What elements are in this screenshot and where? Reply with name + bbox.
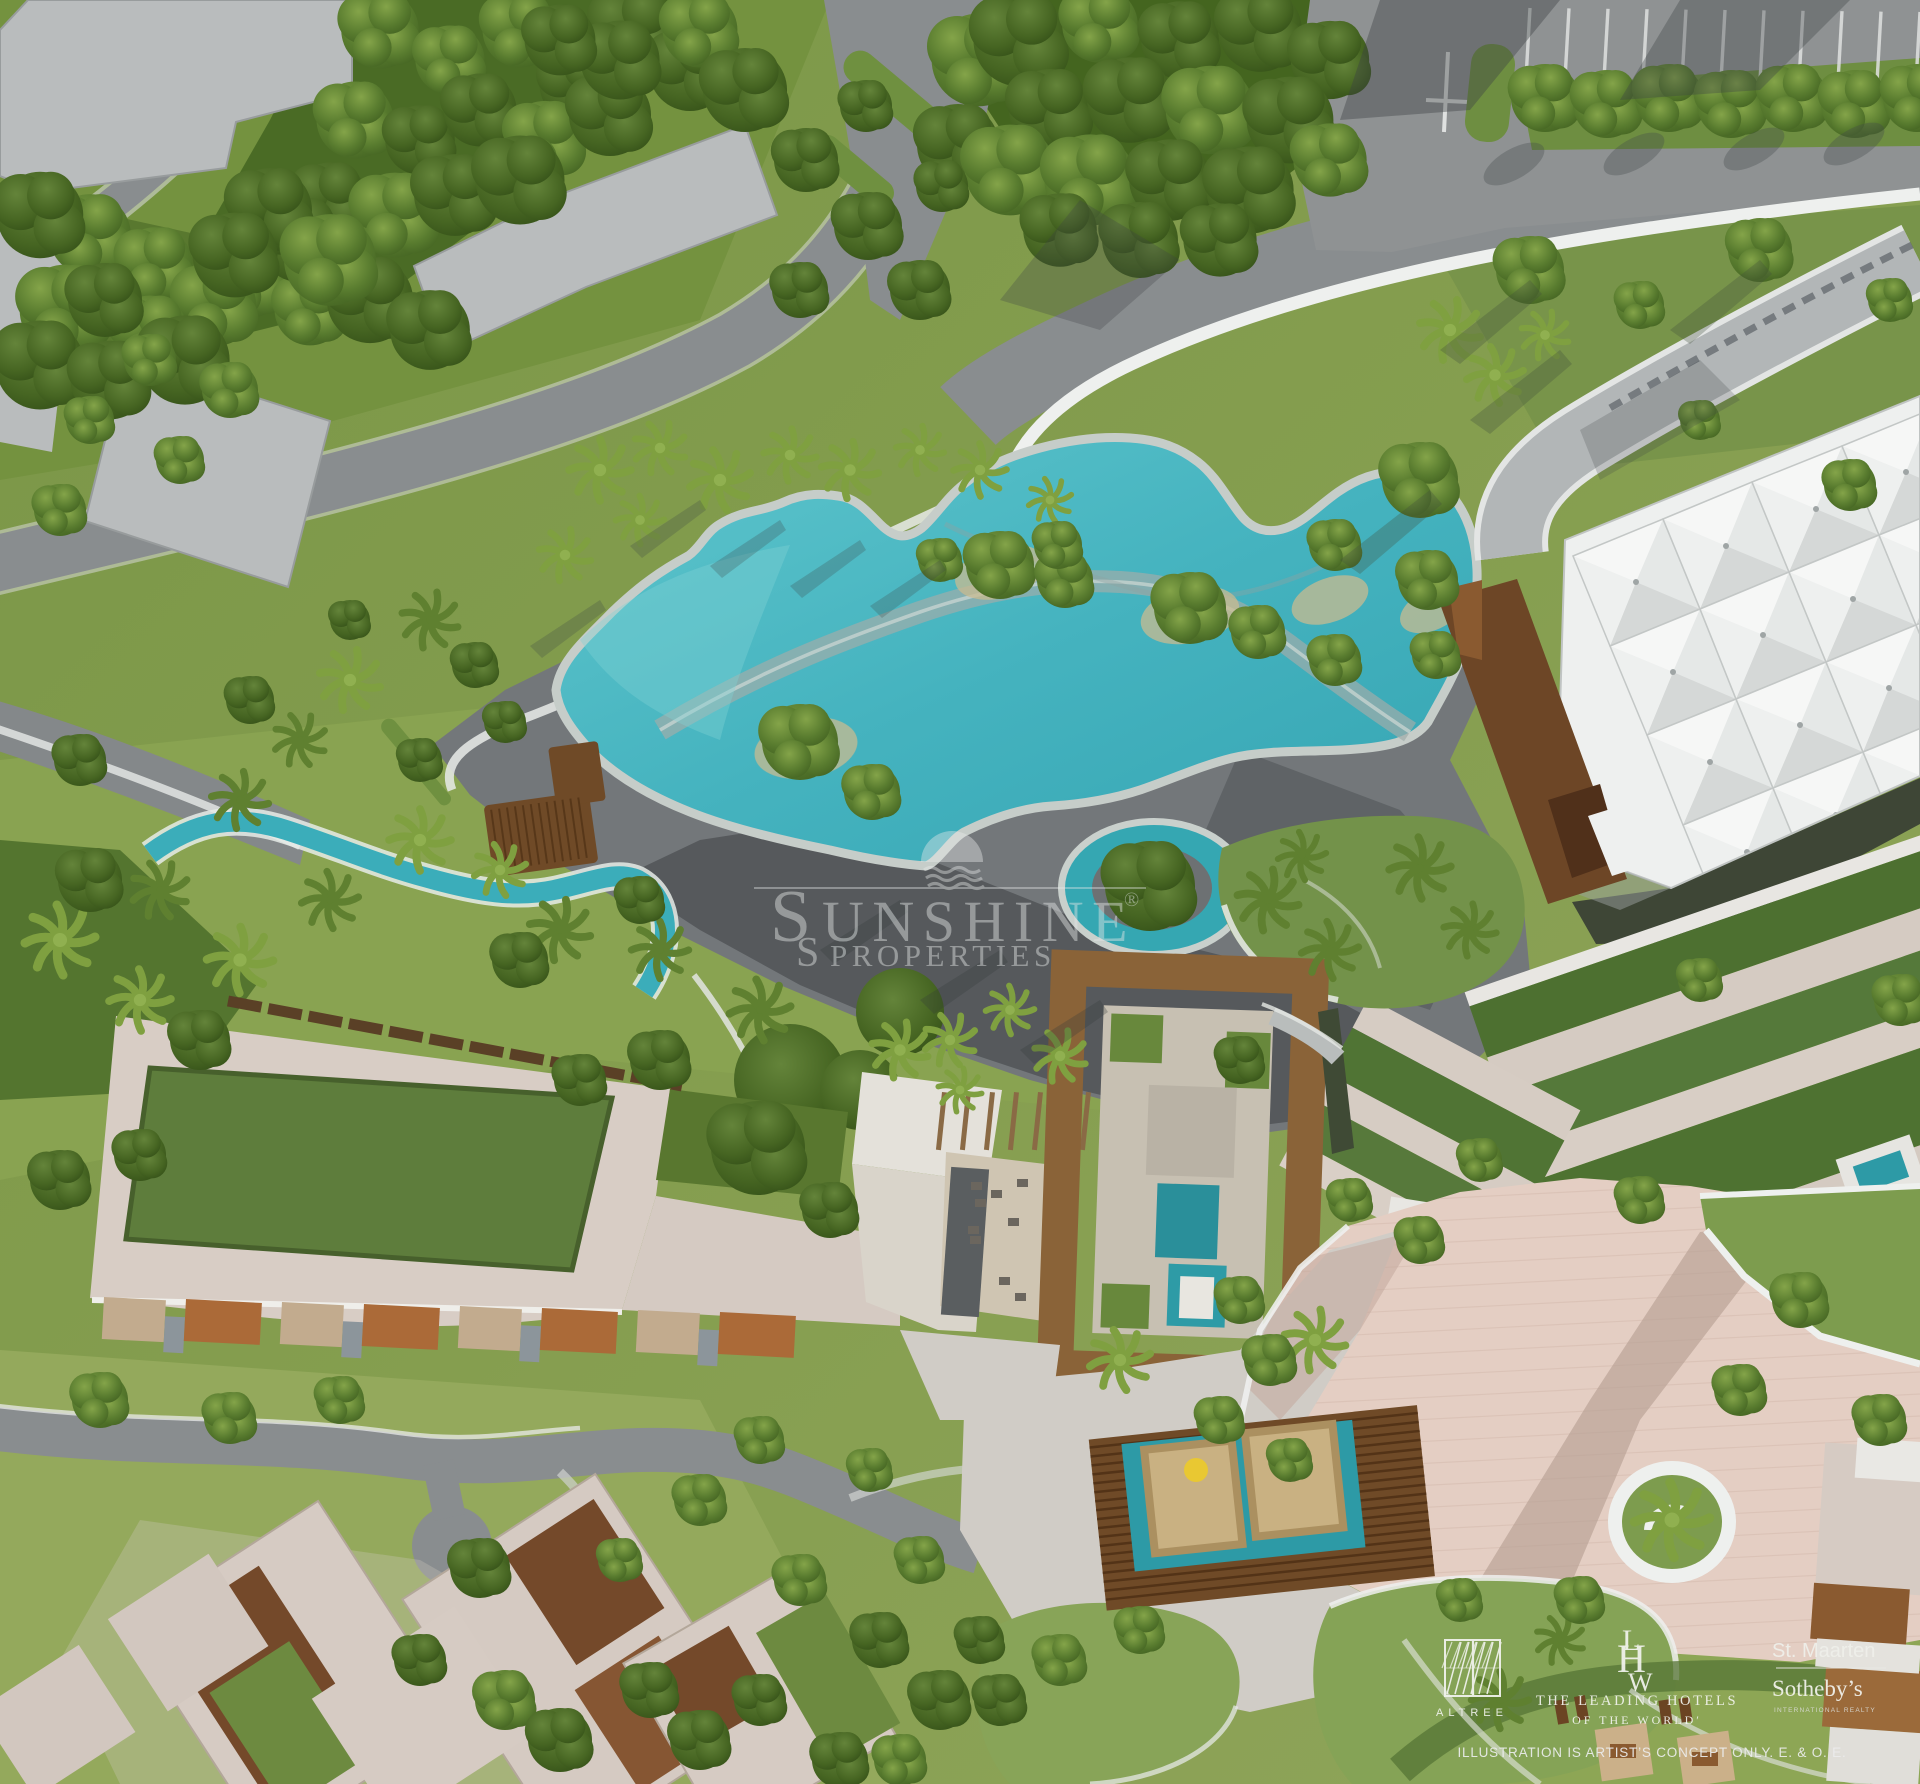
svg-text:ILLUSTRATION IS ARTIST’S CONCE: ILLUSTRATION IS ARTIST’S CONCEPT ONLY. E…: [1457, 1745, 1846, 1760]
svg-text:OF THE WORLD′: OF THE WORLD′: [1572, 1713, 1702, 1727]
svg-text:Sotheby’s: Sotheby’s: [1772, 1676, 1863, 1701]
svg-text:S: S: [796, 930, 819, 976]
svg-text:PROPERTIES: PROPERTIES: [830, 938, 1056, 973]
svg-text:®: ®: [1124, 889, 1139, 911]
svg-text:INTERNATIONAL REALTY: INTERNATIONAL REALTY: [1774, 1707, 1876, 1714]
svg-text:ALTREE: ALTREE: [1436, 1707, 1508, 1719]
svg-text:St. Maarten: St. Maarten: [1772, 1640, 1875, 1662]
svg-text:THE LEADING HOTELS: THE LEADING HOTELS: [1536, 1693, 1738, 1709]
